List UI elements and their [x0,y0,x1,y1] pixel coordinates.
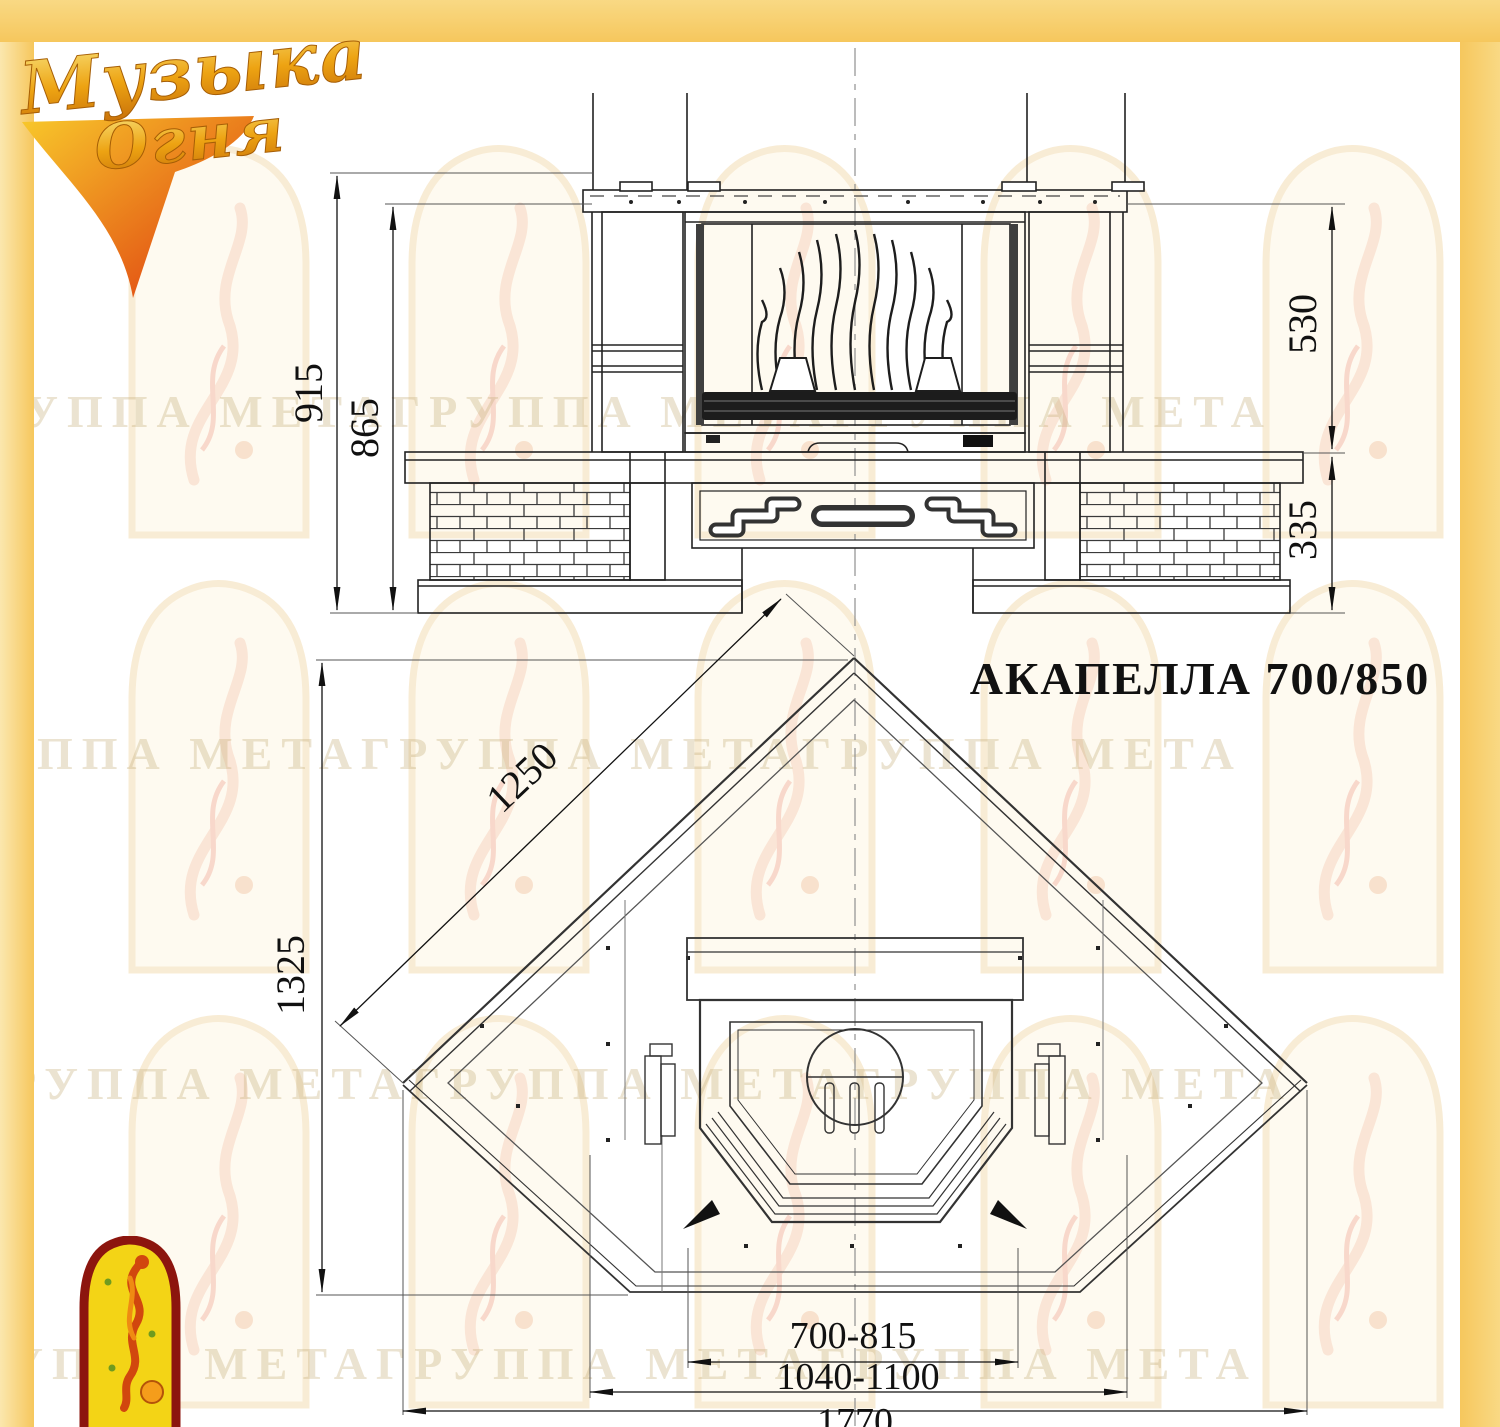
chimney [593,93,1125,190]
dim-1325: 1325 [268,935,313,1015]
plan-view [316,594,1307,1415]
corner-emblem [76,1236,196,1427]
dim-700-815: 700-815 [790,1315,917,1357]
mantel-shelf [405,452,1303,483]
dim-915: 915 [286,363,331,423]
dim-1040-1100: 1040-1100 [776,1356,939,1398]
dim-865: 865 [342,398,387,458]
grate-bar [702,392,1017,420]
flame-decor [758,230,961,391]
front-view [330,48,1345,1427]
base-scroll-ornaments [716,504,1010,530]
dim-335: 335 [1280,500,1325,560]
mantel-top-band [583,182,1144,212]
brand-logo: Музыка Огня [15,40,375,320]
plan-dimensions: 1250 1325 700-815 1040-1100 1770 [268,599,1307,1427]
fastener-dots [480,946,1228,1248]
dim-530: 530 [1280,294,1325,354]
dim-1250: 1250 [477,733,566,821]
emblem-ball [141,1381,163,1403]
dim-1770: 1770 [817,1401,893,1427]
model-title: АКАПЕЛЛА 700/850 [970,653,1431,704]
drawing-page: ГРУППА МЕТАГРУППА МЕТАГРУППА МЕТА ГРУППА… [0,0,1500,1427]
